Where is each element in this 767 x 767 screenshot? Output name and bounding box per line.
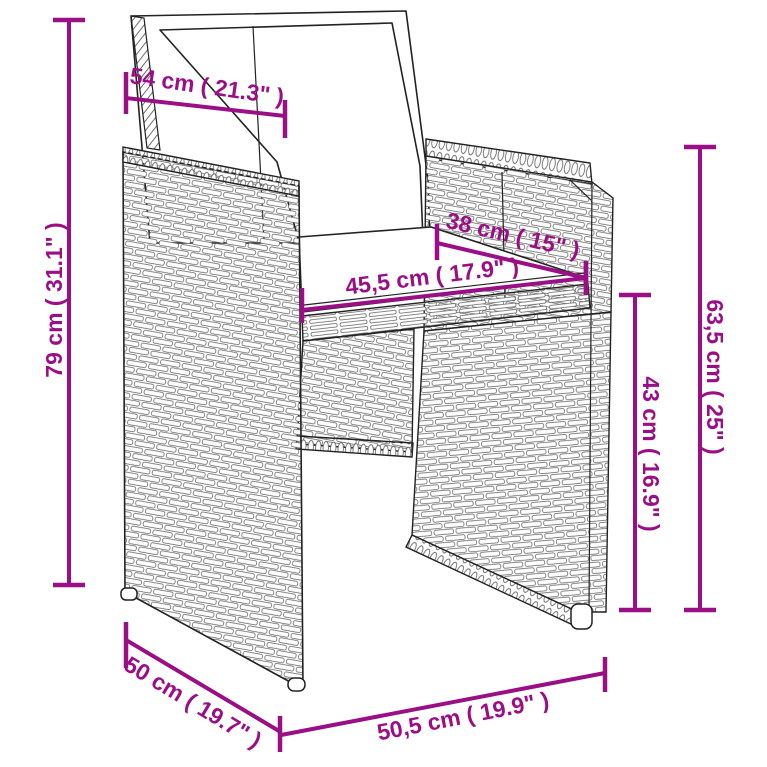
front-apron-panel (297, 329, 414, 452)
left-foot (121, 588, 137, 600)
dim-armrest-height-label: 63,5 cm ( 25" ) (702, 299, 728, 454)
right-side-panel (412, 312, 611, 612)
dim-seat-height-label: 43 cm ( 16.9" ) (638, 376, 664, 531)
dim-seat-height: 43 cm ( 16.9" ) (619, 295, 664, 610)
left-armrest-panel (123, 152, 303, 689)
dim-base-width-label: 50,5 cm ( 19.9" ) (375, 687, 551, 746)
dim-total-height-label: 79 cm ( 31.1" ) (41, 222, 67, 377)
dim-total-height: 79 cm ( 31.1" ) (41, 20, 85, 585)
dim-base-width: 50,5 cm ( 19.9" ) (281, 657, 605, 745)
dim-base-depth-label: 50 cm ( 19.7" ) (120, 651, 267, 753)
front-left-foot (288, 678, 305, 691)
dim-armrest-height: 63,5 cm ( 25" ) (684, 147, 728, 610)
chair-dimension-figure: 54 cm ( 21.3" ) 79 cm ( 31.1" ) 38 cm ( … (0, 0, 767, 767)
product-diagram: 54 cm ( 21.3" ) 79 cm ( 31.1" ) 38 cm ( … (0, 0, 767, 767)
right-foot (571, 604, 592, 629)
chair-illustration (121, 11, 613, 691)
